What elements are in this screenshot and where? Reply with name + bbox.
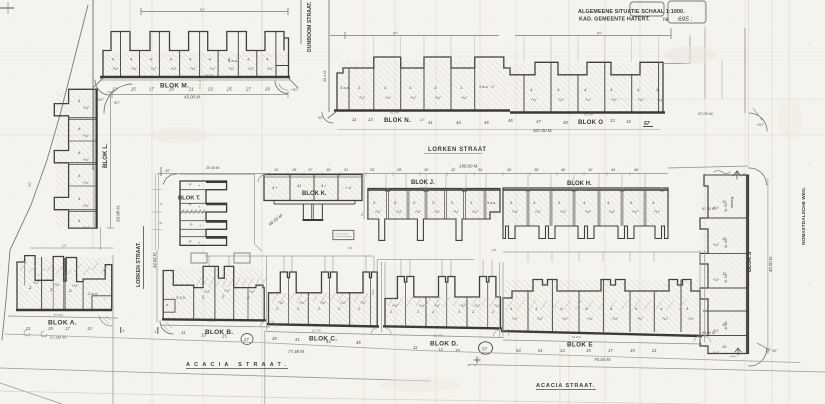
svg-text:27: 27 bbox=[245, 87, 251, 92]
svg-text:pd: pd bbox=[62, 244, 66, 248]
svg-text:13: 13 bbox=[87, 326, 92, 331]
svg-text:21: 21 bbox=[188, 87, 194, 92]
svg-text:+: + bbox=[198, 184, 200, 188]
svg-text:17: 17 bbox=[65, 326, 70, 331]
svg-text:43: 43 bbox=[456, 120, 461, 125]
svg-text:57.00 M.: 57.00 M. bbox=[50, 335, 67, 340]
svg-text:97.00 M.: 97.00 M. bbox=[698, 111, 714, 116]
svg-text:15: 15 bbox=[586, 348, 591, 353]
svg-text:2: 2 bbox=[360, 213, 363, 217]
svg-text:13: 13 bbox=[560, 348, 565, 353]
svg-text:pd: pd bbox=[348, 246, 352, 250]
svg-text:№: № bbox=[663, 17, 669, 23]
svg-text:30.4 M.: 30.4 M. bbox=[323, 70, 327, 82]
svg-text:BLOK M.: BLOK M. bbox=[160, 83, 189, 90]
svg-text:pd: pd bbox=[200, 7, 204, 12]
svg-text:BLOK B.: BLOK B. bbox=[205, 329, 233, 336]
svg-text:57: 57 bbox=[482, 347, 487, 352]
svg-text:43.0 M: 43.0 M bbox=[390, 111, 399, 115]
svg-text:BLOK C.: BLOK C. bbox=[309, 336, 337, 343]
svg-text:4: 4 bbox=[159, 203, 163, 205]
svg-text:11: 11 bbox=[181, 330, 185, 335]
svg-text:15: 15 bbox=[626, 119, 631, 124]
svg-text:163.5 M: 163.5 M bbox=[420, 186, 431, 190]
svg-text:39.98 M.: 39.98 M. bbox=[116, 205, 121, 222]
svg-text:8: 8 bbox=[159, 222, 163, 224]
svg-text:27: 27 bbox=[419, 117, 425, 122]
svg-text:41: 41 bbox=[295, 337, 300, 342]
svg-text:45: 45 bbox=[484, 120, 489, 125]
svg-text:13: 13 bbox=[610, 118, 615, 123]
svg-text:28: 28 bbox=[396, 167, 402, 172]
svg-text:19: 19 bbox=[169, 87, 174, 92]
svg-text:41: 41 bbox=[428, 120, 433, 125]
svg-text:40.00 M.: 40.00 M. bbox=[768, 256, 773, 272]
svg-text:49: 49 bbox=[563, 120, 568, 125]
svg-text:76.44 M.: 76.44 M. bbox=[594, 357, 611, 362]
svg-text:695 :: 695 : bbox=[678, 16, 693, 23]
svg-text:90°: 90° bbox=[98, 97, 104, 102]
svg-text:BLOK D.: BLOK D. bbox=[430, 341, 458, 348]
svg-text:45: 45 bbox=[508, 118, 513, 123]
svg-text:90°: 90° bbox=[318, 116, 324, 120]
svg-text:12: 12 bbox=[742, 172, 747, 177]
svg-text:44.4 M: 44.4 M bbox=[207, 319, 216, 323]
svg-text:LORKEN STRAAT: LORKEN STRAAT bbox=[428, 147, 487, 153]
svg-text:11: 11 bbox=[352, 117, 356, 122]
svg-text:47: 47 bbox=[536, 119, 541, 124]
svg-text:53: 53 bbox=[516, 348, 521, 353]
svg-text:19: 19 bbox=[630, 348, 635, 353]
svg-text:LORKEN STRAAT.: LORKEN STRAAT. bbox=[136, 242, 142, 287]
svg-text:13: 13 bbox=[201, 333, 206, 338]
svg-text:90°: 90° bbox=[165, 169, 171, 173]
svg-text:77.48 M.: 77.48 M. bbox=[288, 349, 305, 354]
svg-text:25: 25 bbox=[369, 167, 375, 172]
svg-text:44.64 M.: 44.64 M. bbox=[152, 252, 157, 268]
svg-text:ACACIA STRAAT.: ACACIA STRAAT. bbox=[536, 383, 594, 389]
svg-text:90°: 90° bbox=[772, 349, 778, 353]
svg-text:45: 45 bbox=[356, 340, 361, 345]
svg-text:13: 13 bbox=[368, 117, 373, 122]
svg-text:51.9 M: 51.9 M bbox=[434, 334, 443, 338]
svg-text:25: 25 bbox=[226, 87, 232, 92]
svg-text:15: 15 bbox=[222, 334, 227, 339]
svg-text:27: 27 bbox=[243, 337, 249, 342]
svg-text:43.00 M.: 43.00 M. bbox=[184, 95, 201, 100]
svg-text:190.00 M.: 190.00 M. bbox=[459, 164, 479, 169]
svg-text:DUNBOOM STRAAT.: DUNBOOM STRAAT. bbox=[307, 1, 313, 52]
svg-text:43: 43 bbox=[326, 339, 331, 344]
svg-text:57.0 M: 57.0 M bbox=[54, 313, 63, 317]
svg-text:15: 15 bbox=[455, 348, 460, 353]
svg-text:BLOK H.: BLOK H. bbox=[567, 181, 592, 187]
svg-text:21: 21 bbox=[343, 167, 348, 172]
svg-text:29.45 M.: 29.45 M. bbox=[205, 166, 220, 170]
svg-text:NOMASTDALSCHE WEG.: NOMASTDALSCHE WEG. bbox=[801, 187, 807, 245]
svg-text:19: 19 bbox=[48, 326, 53, 331]
svg-text:43.0 M: 43.0 M bbox=[584, 113, 593, 117]
svg-text:BLOK L.: BLOK L. bbox=[102, 143, 109, 168]
svg-text:ALGEMEENE SITUATIE SCHAAL 1:1: ALGEMEENE SITUATIE SCHAAL 1:1000. bbox=[578, 9, 685, 15]
svg-text:+: + bbox=[198, 241, 200, 245]
svg-text:51: 51 bbox=[538, 348, 543, 353]
svg-text:11: 11 bbox=[413, 345, 417, 350]
svg-text:+: + bbox=[198, 205, 200, 209]
svg-text:15: 15 bbox=[131, 87, 136, 92]
svg-text:21: 21 bbox=[651, 348, 657, 353]
svg-text:29: 29 bbox=[264, 87, 270, 92]
svg-text:BLOK O: BLOK O bbox=[578, 119, 603, 126]
svg-text:pd: pd bbox=[597, 30, 601, 35]
svg-text:KAD. GEMEENTE HATERT.: KAD. GEMEENTE HATERT. bbox=[579, 17, 650, 23]
svg-text:BLOK T.: BLOK T. bbox=[178, 196, 201, 202]
svg-text:pd: pd bbox=[393, 30, 397, 35]
svg-text:~90°: ~90° bbox=[290, 87, 299, 92]
svg-text:17: 17 bbox=[608, 348, 613, 353]
svg-text:90°: 90° bbox=[114, 100, 120, 105]
svg-text:23: 23 bbox=[207, 87, 213, 92]
svg-text:51.9 M: 51.9 M bbox=[572, 335, 581, 339]
svg-text:39: 39 bbox=[272, 336, 277, 341]
svg-text:BLOK S: BLOK S bbox=[747, 251, 753, 272]
svg-text:51.7 M: 51.7 M bbox=[312, 329, 321, 333]
svg-text:407.00 M.: 407.00 M. bbox=[533, 128, 553, 133]
svg-text:pd: pd bbox=[492, 248, 496, 252]
svg-text:+: + bbox=[199, 224, 201, 228]
svg-text:~90°: ~90° bbox=[756, 123, 764, 127]
svg-text:17: 17 bbox=[149, 87, 154, 92]
svg-text:BLOK N.: BLOK N. bbox=[384, 117, 411, 124]
